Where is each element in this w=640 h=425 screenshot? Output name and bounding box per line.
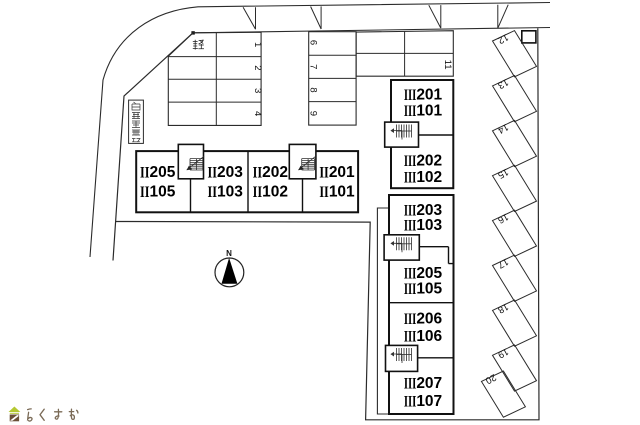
- svg-text:II205: II205: [140, 164, 176, 181]
- svg-text:III202: III202: [404, 153, 442, 170]
- svg-text:III103: III103: [404, 217, 443, 234]
- svg-text:9: 9: [308, 111, 319, 116]
- svg-text:6: 6: [308, 40, 319, 45]
- svg-text:N: N: [226, 249, 232, 258]
- svg-text:II202: II202: [253, 164, 288, 181]
- svg-text:III102: III102: [404, 169, 442, 186]
- svg-text:8: 8: [308, 87, 319, 92]
- svg-text:II101: II101: [319, 183, 355, 200]
- svg-text:II103: II103: [208, 183, 244, 200]
- svg-text:III201: III201: [404, 87, 443, 104]
- svg-text:III206: III206: [404, 311, 443, 328]
- svg-text:III205: III205: [404, 265, 443, 282]
- svg-text:3: 3: [252, 88, 263, 93]
- svg-text:11: 11: [442, 60, 453, 70]
- svg-text:III107: III107: [404, 393, 442, 410]
- svg-text:II102: II102: [253, 183, 288, 200]
- svg-text:III106: III106: [404, 328, 443, 345]
- svg-text:III101: III101: [404, 103, 443, 120]
- svg-text:4: 4: [252, 111, 263, 116]
- svg-text:II105: II105: [140, 183, 176, 200]
- svg-text:1: 1: [252, 42, 263, 47]
- svg-text:II203: II203: [208, 164, 244, 181]
- svg-text:7: 7: [308, 64, 319, 69]
- svg-text:2: 2: [252, 65, 263, 70]
- svg-text:II201: II201: [319, 164, 355, 181]
- svg-text:III105: III105: [404, 281, 443, 298]
- svg-text:III207: III207: [404, 375, 442, 392]
